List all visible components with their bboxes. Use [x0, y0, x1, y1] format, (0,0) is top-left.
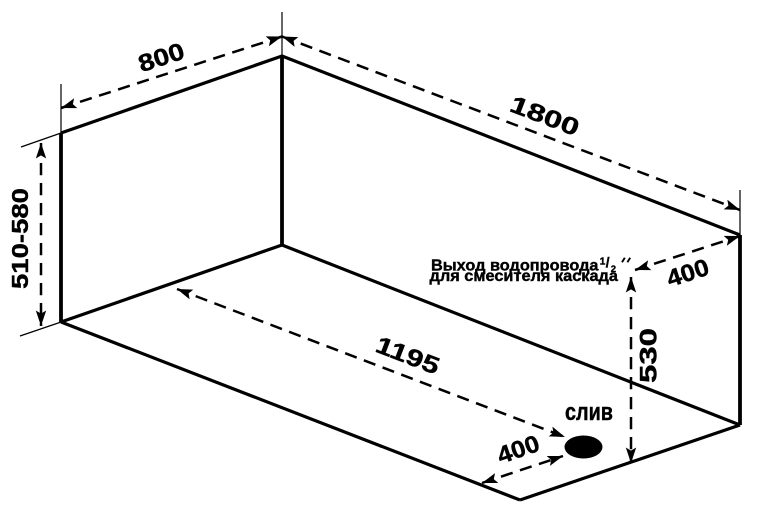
- svg-text:для смесителя каскада: для смесителя каскада: [430, 268, 619, 285]
- svg-text:510-580: 510-580: [7, 188, 33, 289]
- svg-text:слив: слив: [565, 399, 613, 426]
- svg-text:530: 530: [636, 328, 663, 383]
